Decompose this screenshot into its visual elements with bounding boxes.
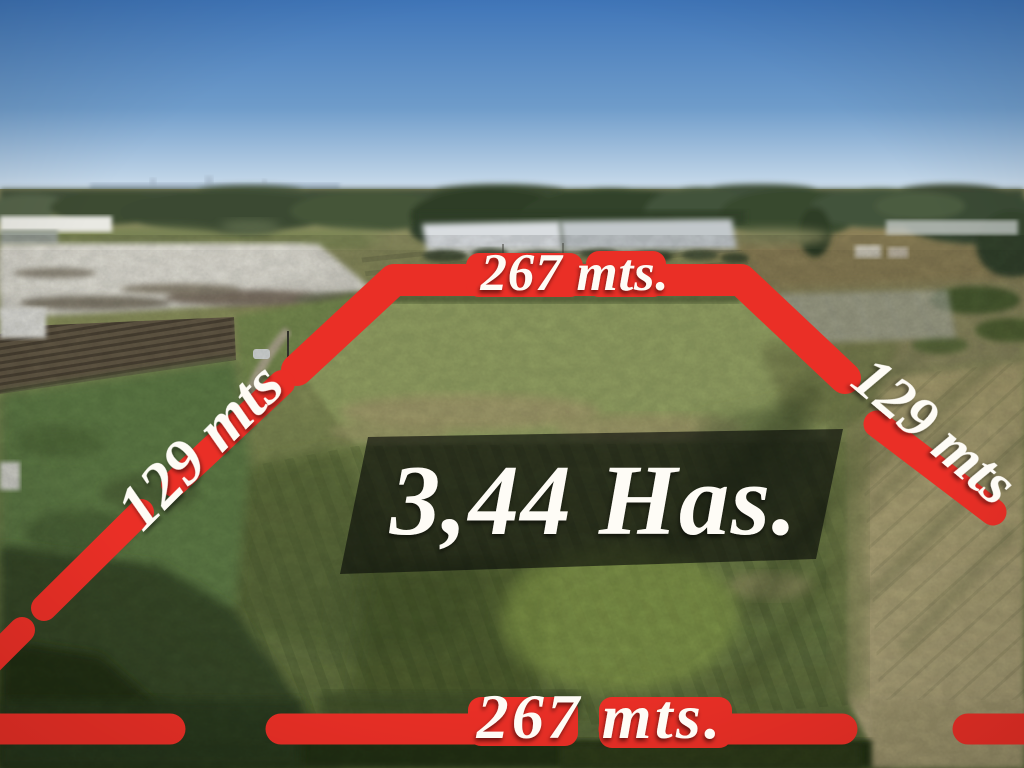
svg-text:267 mts.: 267 mts.: [480, 244, 670, 302]
svg-text:3,44 Has.: 3,44 Has.: [389, 444, 798, 556]
svg-text:267 mts.: 267 mts.: [476, 681, 724, 752]
